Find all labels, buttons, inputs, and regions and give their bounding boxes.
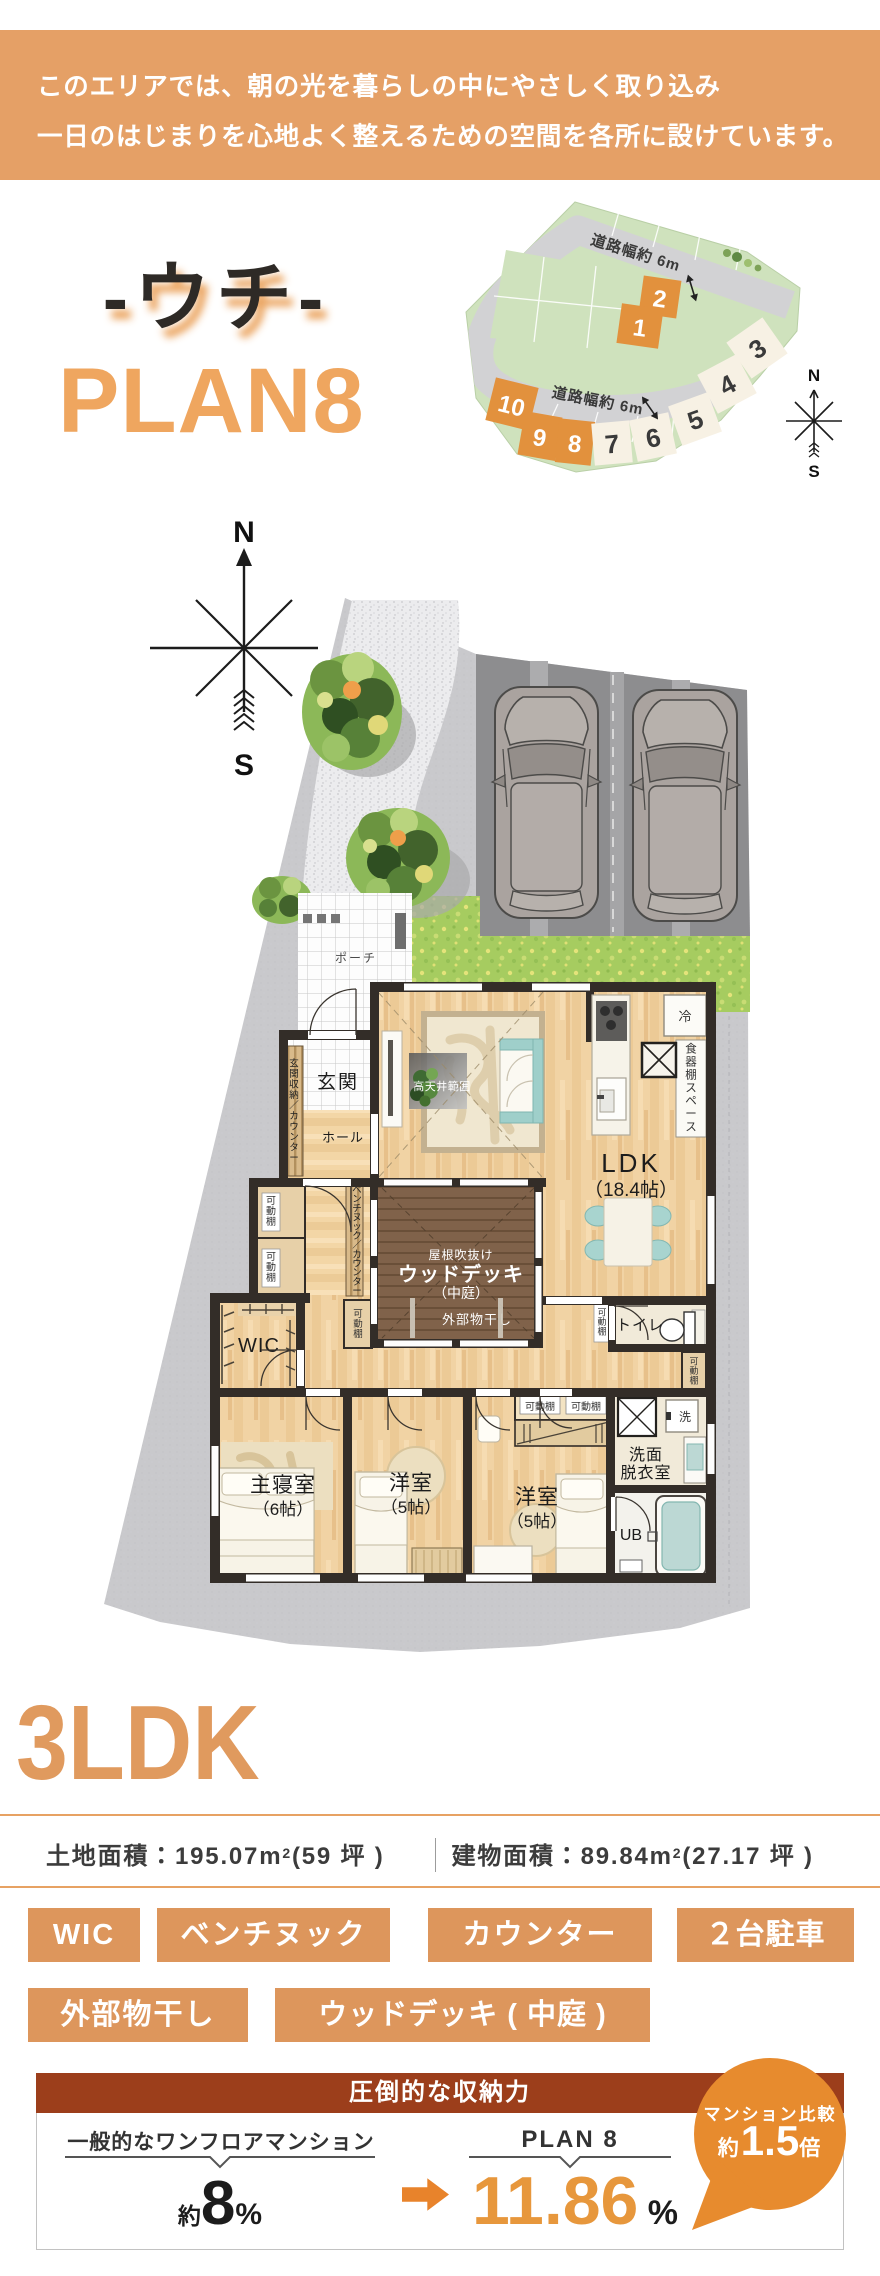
svg-text:ホール: ホール	[322, 1130, 364, 1145]
svg-text:LDK: LDK	[601, 1148, 661, 1178]
svg-text:可動棚: 可動棚	[266, 1252, 276, 1284]
svg-text:（5帖）: （5帖）	[381, 1498, 441, 1517]
svg-text:UB: UB	[620, 1527, 642, 1544]
svg-text:可動棚: 可動棚	[689, 1356, 698, 1385]
svg-text:（中庭）: （中庭）	[433, 1285, 489, 1301]
svg-text:脱衣室: 脱衣室	[620, 1464, 671, 1482]
svg-text:ベンチヌック／カウンター: ベンチヌック／カウンター	[352, 1185, 362, 1297]
svg-text:（5帖）: （5帖）	[507, 1512, 567, 1531]
svg-text:トイレ: トイレ	[616, 1317, 664, 1334]
svg-text:S: S	[234, 749, 254, 782]
svg-text:洋室: 洋室	[389, 1472, 433, 1495]
svg-text:可動棚: 可動棚	[266, 1196, 276, 1228]
svg-text:可動棚: 可動棚	[597, 1307, 606, 1336]
svg-text:可動棚: 可動棚	[353, 1309, 363, 1340]
svg-text:（6帖）: （6帖）	[253, 1500, 313, 1519]
svg-text:屋根吹抜け: 屋根吹抜け	[428, 1248, 493, 1262]
svg-text:洗: 洗	[679, 1410, 691, 1424]
svg-text:高天井範囲: 高天井範囲	[413, 1079, 471, 1093]
svg-text:S: S	[808, 462, 819, 481]
svg-text:食器棚スペース: 食器棚スペース	[685, 1042, 697, 1133]
svg-text:主寝室: 主寝室	[250, 1474, 316, 1497]
svg-text:可動棚: 可動棚	[571, 1400, 601, 1413]
svg-text:8: 8	[567, 430, 583, 458]
svg-text:ウッドデッキ: ウッドデッキ	[398, 1262, 524, 1286]
svg-text:N: N	[808, 366, 820, 385]
svg-text:N: N	[233, 516, 255, 549]
svg-text:ポーチ: ポーチ	[335, 951, 377, 965]
svg-text:WIC: WIC	[238, 1335, 280, 1357]
svg-text:洗面: 洗面	[629, 1446, 663, 1464]
svg-text:玄関収納／カウンター: 玄関収納／カウンター	[289, 1058, 299, 1165]
svg-text:7: 7	[604, 428, 621, 459]
svg-text:冷: 冷	[678, 1009, 691, 1024]
svg-text:玄関: 玄関	[317, 1071, 359, 1093]
svg-text:（18.4帖）: （18.4帖）	[584, 1179, 678, 1201]
svg-text:洋室: 洋室	[515, 1486, 559, 1509]
